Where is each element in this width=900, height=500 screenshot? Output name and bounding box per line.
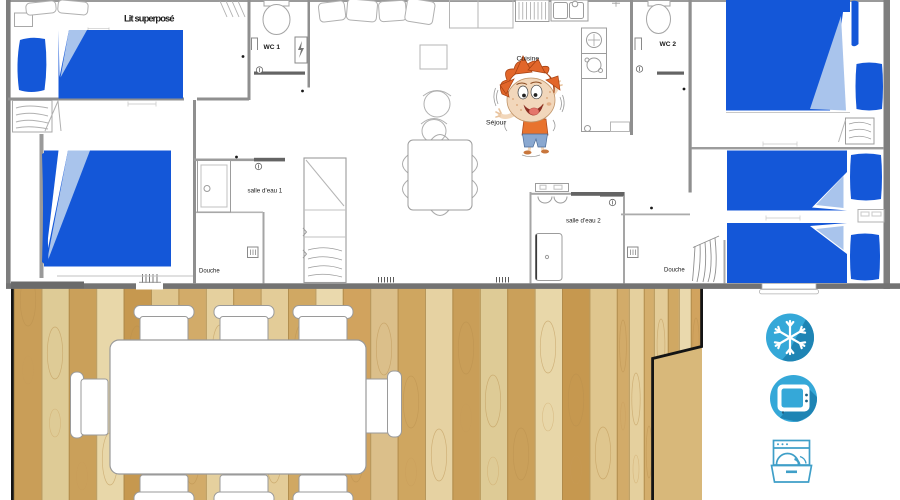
svg-text:salle d’eau 2: salle d’eau 2 [566,218,601,225]
svg-text:salle d’eau 1: salle d’eau 1 [248,188,283,195]
svg-text:Séjour: Séjour [486,120,506,127]
svg-text:WC 2: WC 2 [660,41,677,48]
svg-text:Lit superposé: Lit superposé [124,14,175,24]
svg-text:Douche: Douche [664,268,685,274]
svg-text:WC 1: WC 1 [264,44,281,51]
svg-text:Douche: Douche [199,269,220,275]
svg-text:Cuisine: Cuisine [517,56,540,63]
